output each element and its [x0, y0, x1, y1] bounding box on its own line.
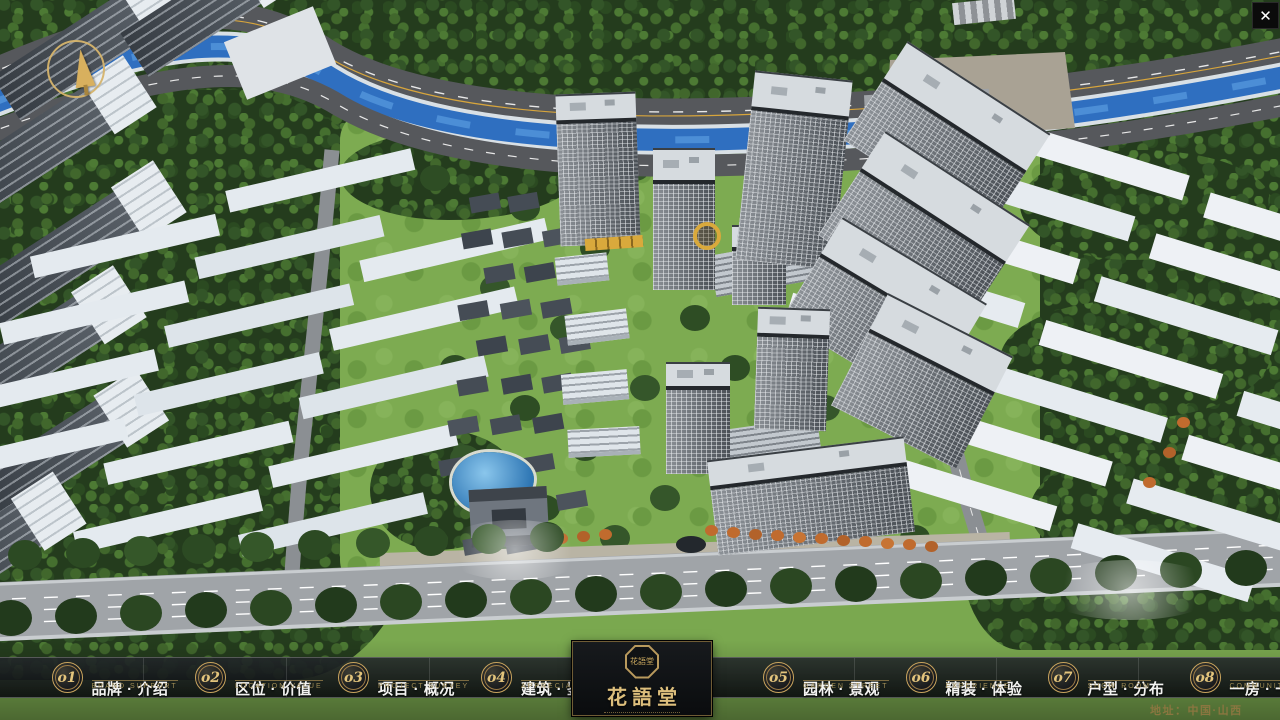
- midrise: [567, 426, 640, 458]
- close-icon: ✕: [1259, 7, 1272, 25]
- project-address: 地址：中国·山西: [1150, 702, 1280, 718]
- nav-number-badge: o5: [763, 662, 794, 693]
- nav-item-community[interactable]: o8 一房 · 一景 COMMUNITY: [1138, 658, 1280, 697]
- midrise: [561, 369, 629, 405]
- nav-item-brand-intro[interactable]: o1 品牌 · 介绍 BRAND SUPPORT: [0, 658, 143, 697]
- nav-number-badge: o1: [52, 662, 83, 693]
- gold-sculpture: [693, 222, 721, 250]
- nav-number-badge: o3: [338, 662, 369, 693]
- brand-name: 花語堂: [602, 681, 682, 710]
- brand-panel[interactable]: 花語堂 花語堂: [572, 641, 712, 716]
- nav-number-badge: o7: [1048, 662, 1079, 693]
- nav-item-project-survey[interactable]: o3 项目 · 概况 PROJECT SURVEY: [286, 658, 429, 697]
- main-gate: [676, 536, 706, 553]
- close-button[interactable]: ✕: [1252, 2, 1279, 29]
- compass-icon: [47, 40, 105, 98]
- haze: [440, 520, 590, 580]
- nav-item-floorplans[interactable]: o7 户型 · 分布 SHOW ROOM: [996, 658, 1138, 697]
- nav-item-garden[interactable]: o5 园林 · 景观 GARDEN STREET: [712, 658, 854, 697]
- nav-number-badge: o6: [906, 662, 937, 693]
- nav-item-experience[interactable]: o6 精装 · 体验 EXPERIENCE: [854, 658, 996, 697]
- tower: [555, 92, 640, 247]
- nav-number-badge: o2: [195, 662, 226, 693]
- nav-number-badge: o8: [1190, 662, 1221, 693]
- nav-item-location-value[interactable]: o2 区位 · 价值 LOCATION VALUE: [143, 658, 286, 697]
- tower: [666, 362, 730, 474]
- tower: [754, 307, 830, 431]
- midrise: [555, 252, 610, 285]
- nav-number-badge: o4: [481, 662, 512, 693]
- brand-tagline-rule: [604, 712, 680, 713]
- nav-label-en: COMMUNITY: [1230, 680, 1280, 690]
- nav-item-architecture[interactable]: o4 建筑 · 鉴赏 APPRECIATION: [429, 658, 572, 697]
- presentation-screen: ✕ o1 品牌 · 介绍 BRAND SUPPORT o2 区位 · 价值 LO…: [0, 0, 1280, 720]
- brand-seal-icon: 花語堂: [625, 645, 659, 679]
- tower: [653, 148, 715, 290]
- aerial-map: [0, 0, 1280, 720]
- autumn-shrubs: [705, 525, 718, 536]
- street-trees-north: [8, 540, 42, 570]
- haze: [1040, 560, 1220, 620]
